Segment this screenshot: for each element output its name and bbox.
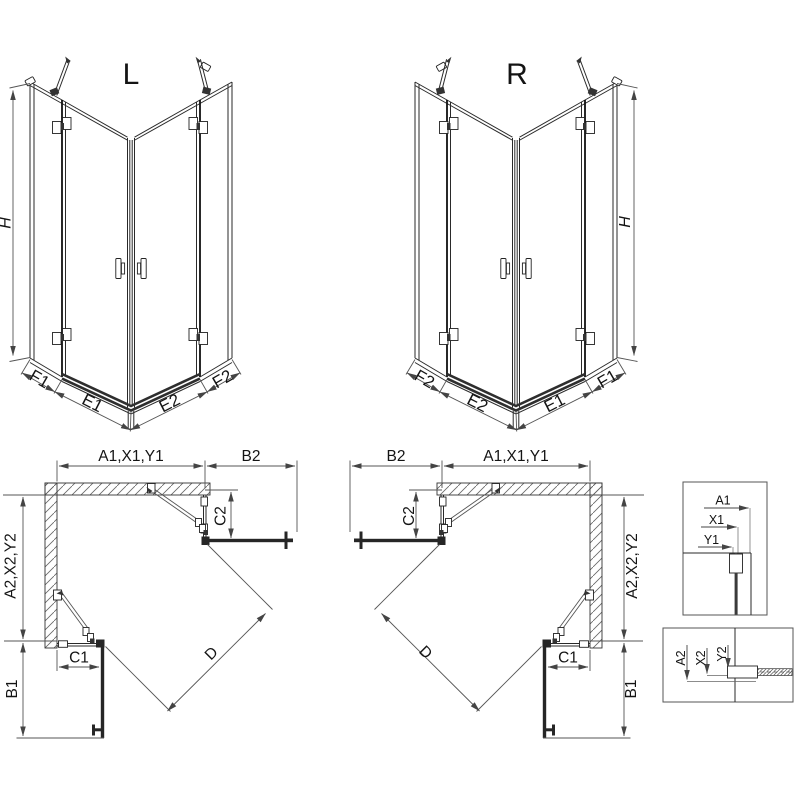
dim-label-c1: C1 (558, 650, 578, 667)
3d-view-left: L H F1 E1 E2 F2 (0, 57, 241, 432)
dim-label-c1: C1 (69, 650, 89, 667)
dim-label-c2: C2 (401, 506, 418, 526)
plan-view-left: A1,X1,Y1 B2 A2,X2,Y2 C2 C1 D B1 (3, 448, 297, 738)
dim-label-diagonal: D (415, 643, 435, 663)
detail-label-y1: Y1 (704, 533, 719, 547)
detail-label-a1: A1 (715, 493, 730, 507)
dim-label-top-left-width: B2 (387, 448, 406, 465)
dim-label-b1: B1 (4, 680, 21, 699)
plan-view-right: B2 A1,X1,Y1 C2 A2,X2,Y2 D C1 B1 (350, 448, 644, 738)
detail-wall-profile-top: A1 X1 Y1 (683, 482, 767, 615)
dim-label-top-width: A1,X1,Y1 (483, 448, 549, 465)
3d-view-right: R H F2 E2 E1 F1 (406, 57, 638, 432)
shower-enclosure-technical-drawing: L H F1 E1 E2 F2 R H F2 E2 E1 F1 A1,X1,Y1… (0, 0, 800, 800)
dim-label-c2: C2 (213, 506, 230, 526)
detail-label-y2: Y2 (715, 646, 729, 661)
dim-label-height-left: H (0, 217, 15, 229)
variant-title-right: R (506, 58, 528, 91)
detail-label-x2: X2 (694, 650, 708, 665)
dim-label-top-right-width: B2 (242, 448, 261, 465)
dim-label-right-depth: A2,X2,Y2 (624, 533, 641, 599)
detail-label-x1: X1 (709, 513, 724, 527)
dim-label-height-right: H (617, 216, 634, 228)
detail-wall-profile-bottom: A2 X2 Y2 (663, 628, 793, 702)
dim-label-b1: B1 (623, 680, 640, 699)
dim-label-top-width: A1,X1,Y1 (98, 448, 164, 465)
detail-label-a2: A2 (674, 650, 688, 665)
variant-title-left: L (123, 58, 140, 91)
dim-label-left-depth: A2,X2,Y2 (3, 533, 20, 599)
